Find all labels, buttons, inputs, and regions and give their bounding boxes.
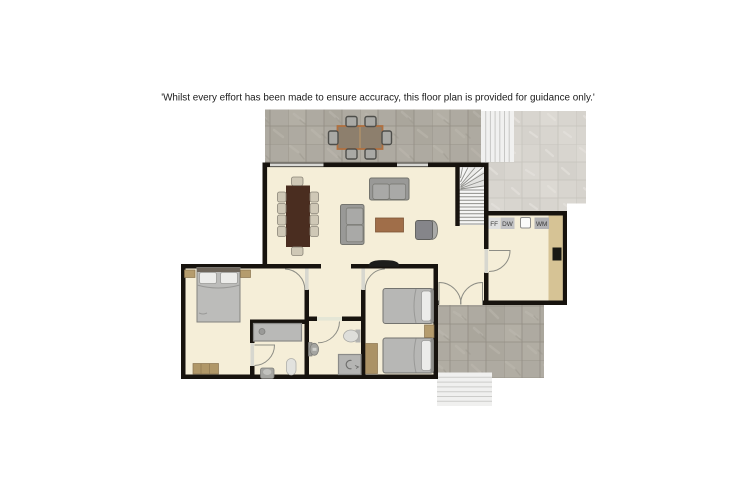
svg-text:WM: WM [536,221,547,228]
svg-text:DW: DW [502,221,514,228]
svg-text:'Whilst every effort has been: 'Whilst every effort has been made to en… [161,93,595,104]
svg-text:FF: FF [490,221,498,228]
